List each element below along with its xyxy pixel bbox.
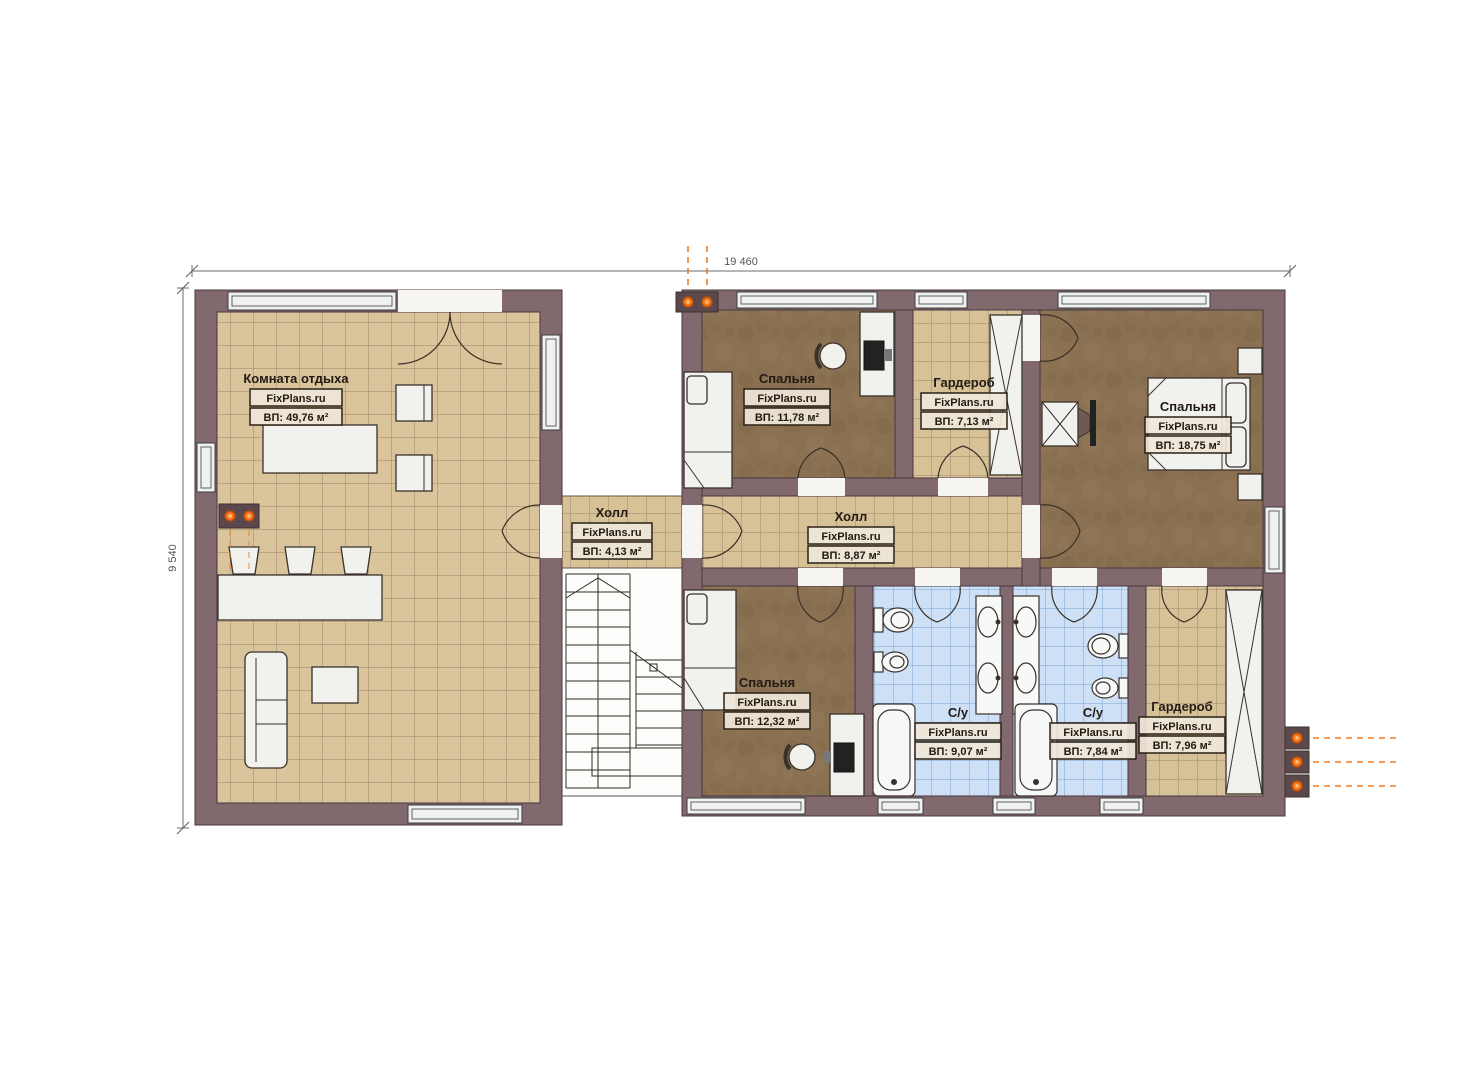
wall-lamp-icon xyxy=(225,511,235,521)
bed-icon xyxy=(684,372,732,488)
bathtub-icon xyxy=(873,704,915,796)
room-area: ВП: 11,78 м² xyxy=(755,412,820,424)
room-label-wardrobe-top: Гардероб FixPlans.ru ВП: 7,13 м² xyxy=(921,375,1007,429)
room-area: ВП: 8,87 м² xyxy=(822,550,881,562)
wall-lamp-icon xyxy=(244,511,254,521)
brand-watermark: FixPlans.ru xyxy=(1158,421,1217,433)
room-area: ВП: 7,84 м² xyxy=(1064,746,1123,758)
room-name: Спальня xyxy=(1160,399,1216,414)
brand-watermark: FixPlans.ru xyxy=(934,397,993,409)
window xyxy=(228,292,396,310)
wall-lamp-icon xyxy=(1292,757,1302,767)
bar-stool-icon xyxy=(229,547,259,574)
room-name: Гардероб xyxy=(933,375,994,390)
brand-watermark: FixPlans.ru xyxy=(737,697,796,709)
bar-stool-icon xyxy=(285,547,315,574)
window xyxy=(993,798,1035,814)
floor-plan: 19 460 9 540 xyxy=(0,0,1473,1080)
room-name: Холл xyxy=(835,509,868,524)
nightstand-icon xyxy=(1238,348,1262,374)
dimension-height-label: 9 540 xyxy=(167,544,179,572)
brand-watermark: FixPlans.ru xyxy=(928,727,987,739)
window xyxy=(542,335,560,430)
room-area: ВП: 49,76 м² xyxy=(264,412,329,424)
window xyxy=(737,292,877,308)
seat-icon xyxy=(396,455,432,491)
door-opening-french xyxy=(398,290,502,312)
room-area: ВП: 7,13 м² xyxy=(935,416,994,428)
window xyxy=(1100,798,1143,814)
room-area: ВП: 7,96 м² xyxy=(1153,740,1212,752)
wall-lamp-icon xyxy=(1292,781,1302,791)
window xyxy=(878,798,923,814)
brand-watermark: FixPlans.ru xyxy=(1063,727,1122,739)
wall-lamp-icon xyxy=(702,297,712,307)
stairs xyxy=(562,568,682,796)
bar-stool-icon xyxy=(341,547,371,574)
room-label-lounge: Комната отдыха FixPlans.ru ВП: 49,76 м² xyxy=(243,371,349,425)
wall-lamp-icon xyxy=(683,297,693,307)
dimension-left: 9 540 xyxy=(167,282,189,834)
window xyxy=(197,443,215,492)
sofa-icon xyxy=(245,652,287,768)
pillow-icon xyxy=(687,376,707,404)
room-name: С/у xyxy=(948,705,969,720)
toilet-icon xyxy=(874,608,913,632)
toilet-icon xyxy=(1088,634,1128,658)
room-name: Спальня xyxy=(759,371,815,386)
bar-counter xyxy=(218,575,382,620)
wardrobe-icon xyxy=(1226,590,1262,794)
brand-watermark: FixPlans.ru xyxy=(582,527,641,539)
brand-watermark: FixPlans.ru xyxy=(821,531,880,543)
window xyxy=(1058,292,1210,308)
room-area: ВП: 9,07 м² xyxy=(929,746,988,758)
chair-icon xyxy=(785,744,815,770)
room-name: Спальня xyxy=(739,675,795,690)
vanity-sink-icon xyxy=(1013,596,1039,714)
room-name: Холл xyxy=(596,505,629,520)
room-label-wardrobe-master: Гардероб FixPlans.ru ВП: 7,96 м² xyxy=(1139,699,1225,753)
dimension-width-label: 19 460 xyxy=(724,256,758,268)
chair-icon xyxy=(816,343,846,369)
bidet-icon xyxy=(1092,678,1128,698)
seat-icon xyxy=(396,385,432,421)
brand-watermark: FixPlans.ru xyxy=(1152,721,1211,733)
brand-watermark: FixPlans.ru xyxy=(266,393,325,405)
room-area: ВП: 12,32 м² xyxy=(735,716,800,728)
bidet-icon xyxy=(874,652,908,672)
window xyxy=(687,798,805,814)
window xyxy=(1265,507,1283,573)
window xyxy=(408,805,522,823)
wall-lamp-group-top xyxy=(676,246,718,312)
window xyxy=(915,292,967,308)
tv-icon xyxy=(1090,400,1096,446)
vanity-sink-icon xyxy=(976,596,1002,714)
table xyxy=(263,425,377,473)
room-name: Комната отдыха xyxy=(243,371,349,386)
room-area: ВП: 18,75 м² xyxy=(1156,440,1221,452)
bed-icon xyxy=(684,590,736,710)
nightstand-icon xyxy=(1238,474,1262,500)
room-name: С/у xyxy=(1083,705,1104,720)
room-area: ВП: 4,13 м² xyxy=(583,546,642,558)
room-name: Гардероб xyxy=(1151,699,1212,714)
floor-plan-canvas: 19 460 9 540 xyxy=(0,0,1473,1080)
brand-watermark: FixPlans.ru xyxy=(757,393,816,405)
wall-lamp-group-right xyxy=(1285,727,1400,797)
pillow-icon xyxy=(687,594,707,624)
wall-lamp-icon xyxy=(1292,733,1302,743)
coffee-table xyxy=(312,667,358,703)
dimension-top: 19 460 xyxy=(186,256,1296,277)
